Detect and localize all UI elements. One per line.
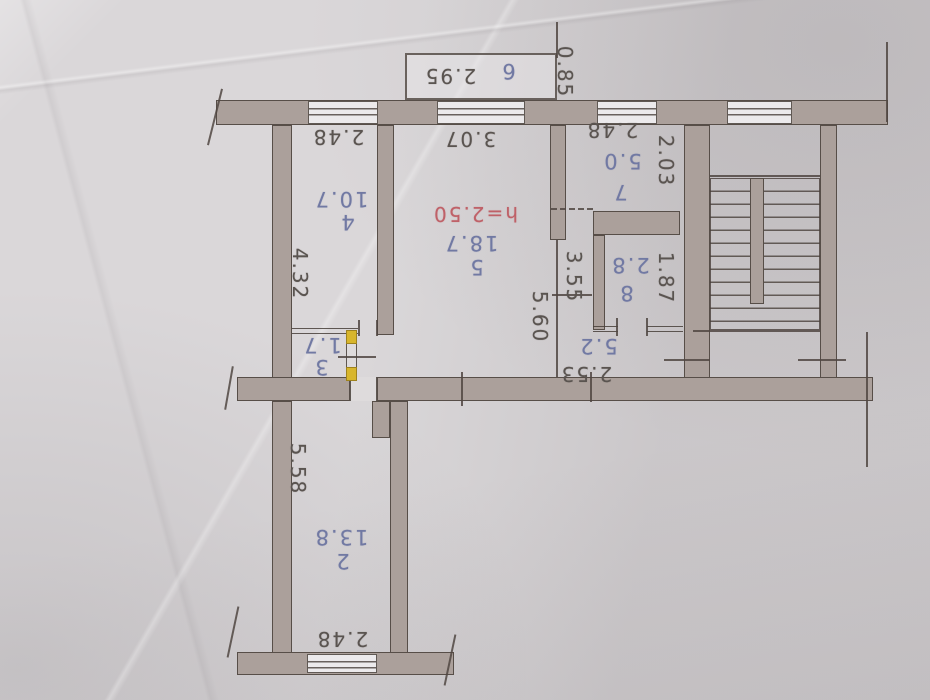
label-room2-area: 13.8	[314, 525, 369, 549]
label-room5-width: 3.07	[444, 127, 497, 151]
label-room2-width: 2.48	[316, 627, 369, 651]
label-room7-width: 2.48	[586, 118, 639, 142]
label-hall-depth: 3.55	[562, 251, 586, 304]
label-room3-area: 1.7	[302, 333, 341, 357]
label-room2-number: 2	[334, 549, 349, 573]
label-room5-number: 5	[468, 255, 483, 279]
label-room4-number: 4	[339, 210, 354, 234]
label-hall-width: 2.53	[560, 362, 613, 386]
floor-plan-photo: 2.9560.852.483.072.485.072.0310.744.32h=…	[0, 0, 930, 700]
label-balcony-number: 6	[500, 59, 515, 83]
label-room7-depth: 2.03	[654, 135, 678, 188]
plan-labels: 2.9560.852.483.072.485.072.0310.744.32h=…	[0, 0, 930, 700]
label-balcony-length: 2.95	[424, 64, 477, 88]
label-room5-depth: 5.60	[528, 291, 552, 344]
label-room4-area: 10.7	[314, 187, 369, 211]
label-room2-depth: 5.58	[286, 443, 310, 496]
label-room5-ceiling-height: h=2.50	[432, 202, 518, 226]
label-balcony-depth: 0.85	[553, 46, 577, 99]
label-room4-width: 2.48	[312, 125, 365, 149]
label-hall-area: 5.2	[578, 334, 617, 358]
label-room8-area: 2.8	[610, 253, 649, 277]
label-room7-area: 5.0	[602, 149, 641, 173]
label-room3-number: 3	[313, 355, 328, 379]
label-room8-number: 8	[618, 281, 633, 305]
label-room4-depth: 4.32	[288, 248, 312, 301]
label-room7-number: 7	[612, 180, 627, 204]
label-room8-depth: 1.87	[654, 252, 678, 305]
label-room5-area: 18.7	[444, 231, 499, 255]
